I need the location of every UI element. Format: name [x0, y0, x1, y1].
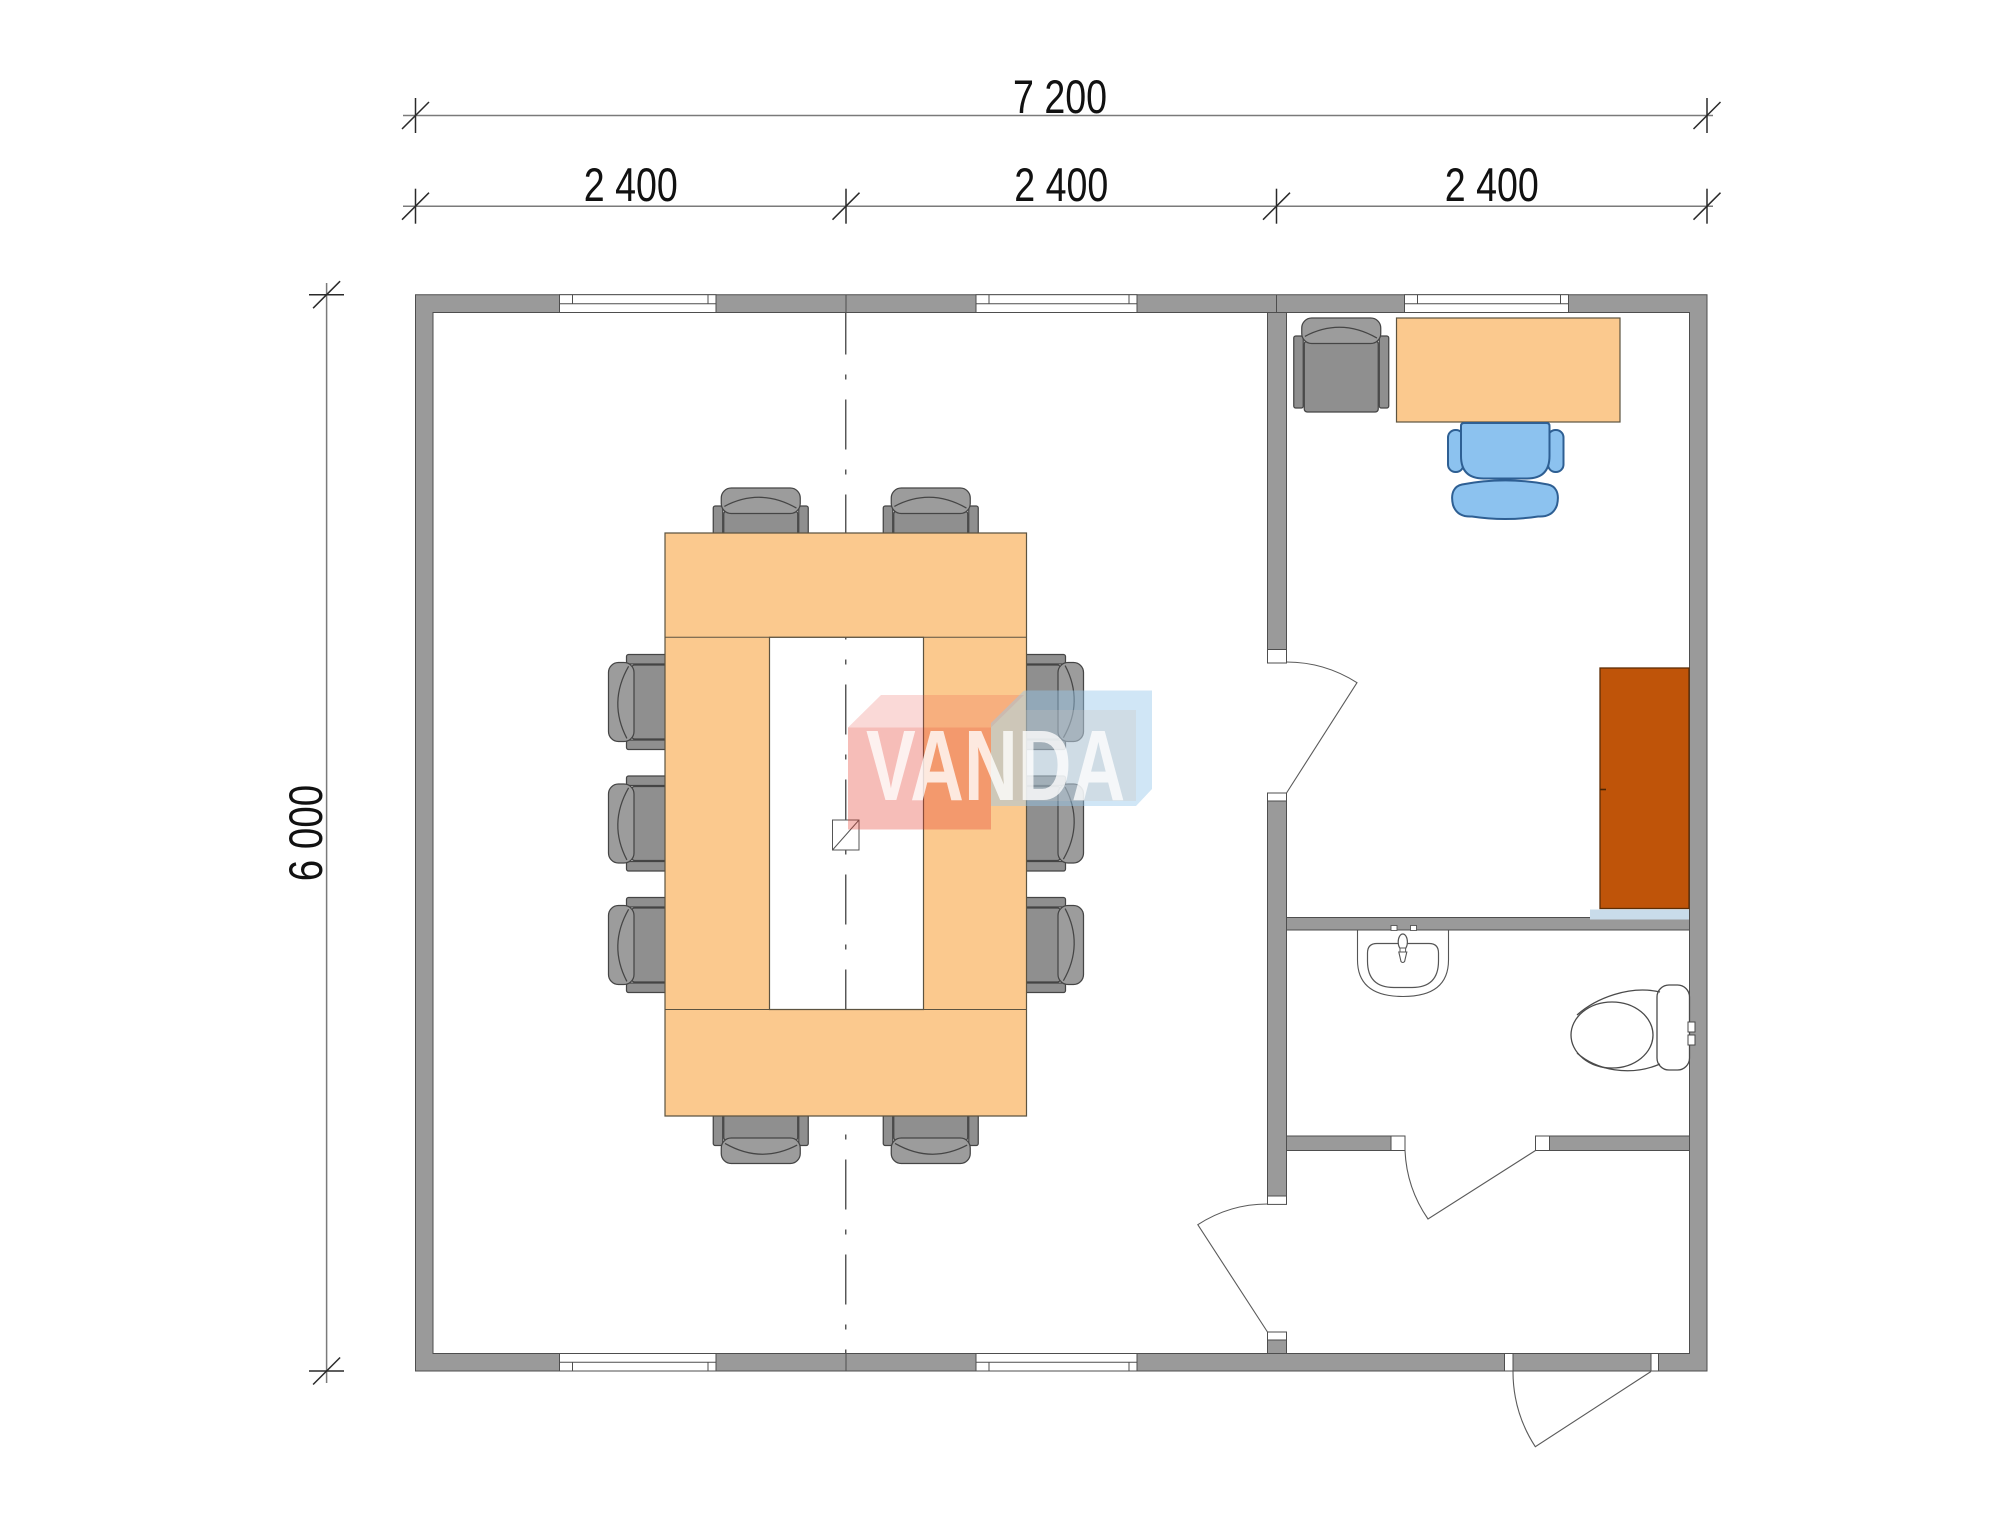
svg-text:VANDA: VANDA: [866, 709, 1125, 821]
svg-text:6 000: 6 000: [280, 785, 332, 881]
svg-text:7 200: 7 200: [1013, 71, 1107, 124]
svg-text:2 400: 2 400: [1445, 159, 1539, 212]
svg-text:2 400: 2 400: [584, 159, 678, 212]
svg-text:2 400: 2 400: [1014, 159, 1108, 212]
